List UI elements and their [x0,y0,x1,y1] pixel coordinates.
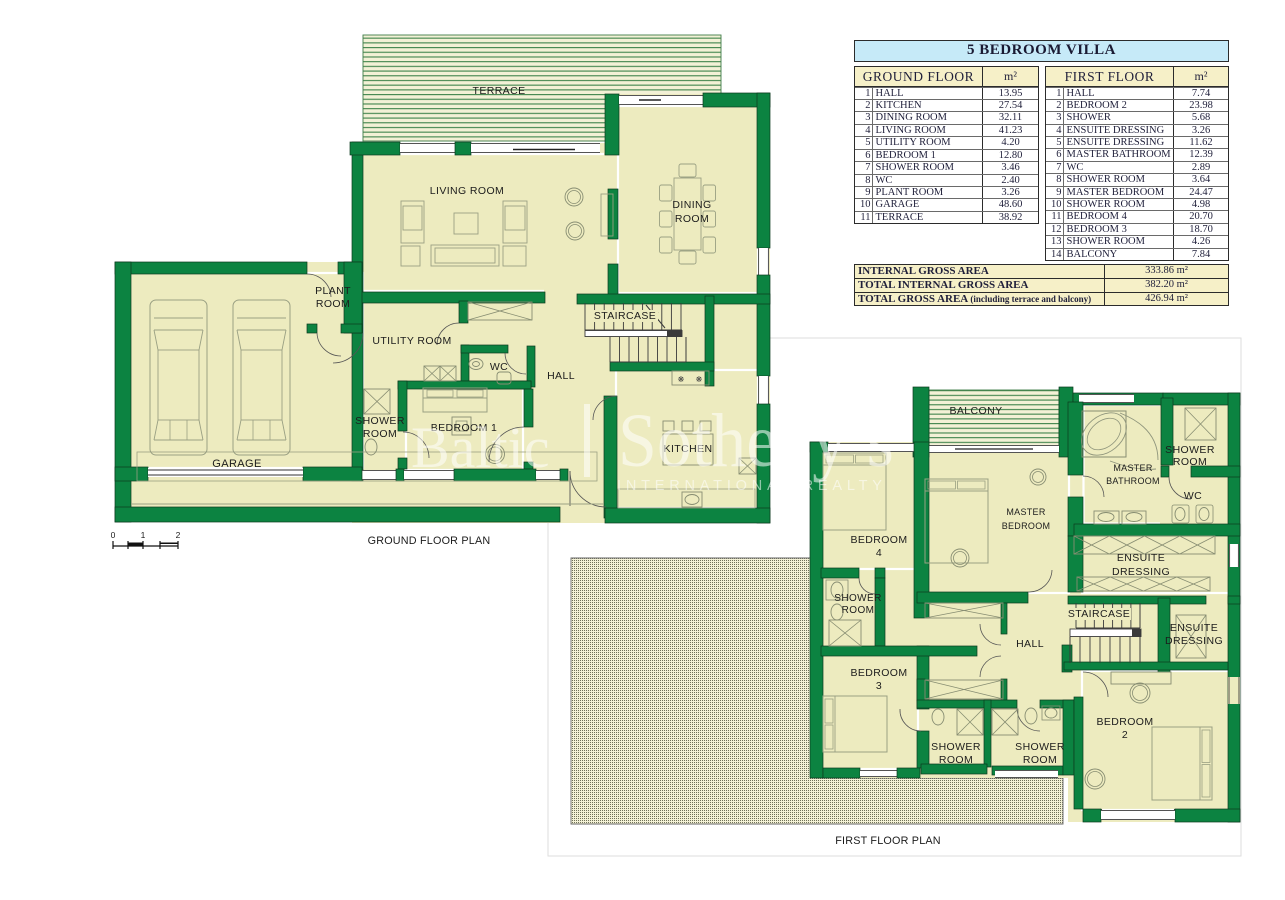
svg-text:BEDROOM: BEDROOM [850,534,907,546]
svg-text:BEDROOM: BEDROOM [1002,521,1051,531]
svg-text:2: 2 [176,530,181,540]
svg-text:MASTER: MASTER [1006,507,1046,517]
svg-text:STAIRCASE: STAIRCASE [594,310,656,322]
svg-text:SHOWER: SHOWER [931,741,981,753]
svg-text:BATHROOM: BATHROOM [1106,476,1160,486]
svg-text:GROUND FLOOR PLAN: GROUND FLOOR PLAN [368,535,491,547]
svg-text:ROOM: ROOM [675,213,709,225]
svg-text:0: 0 [111,530,116,540]
svg-text:UTILITY ROOM: UTILITY ROOM [372,335,451,347]
svg-text:WC: WC [1184,490,1202,502]
svg-text:SHOWER: SHOWER [1015,741,1065,753]
svg-text:SHOWER: SHOWER [834,593,881,604]
svg-text:1: 1 [141,530,146,540]
svg-text:BEDROOM: BEDROOM [1096,716,1153,728]
svg-text:ROOM: ROOM [316,298,350,310]
svg-text:DINING: DINING [672,199,711,211]
svg-text:HALL: HALL [547,370,575,382]
svg-text:FIRST FLOOR PLAN: FIRST FLOOR PLAN [835,835,941,847]
svg-text:SHOWER: SHOWER [355,415,405,427]
svg-text:ROOM: ROOM [1023,754,1057,766]
svg-text:4: 4 [876,547,882,559]
svg-text:GARAGE: GARAGE [212,458,261,470]
svg-text:STAIRCASE: STAIRCASE [1068,608,1130,620]
svg-text:ENSUITE: ENSUITE [1117,552,1165,564]
svg-text:ROOM: ROOM [1173,456,1207,468]
svg-text:MASTER: MASTER [1113,463,1153,473]
svg-text:SHOWER: SHOWER [1165,444,1215,456]
svg-text:❋: ❋ [696,375,703,384]
svg-text:DRESSING: DRESSING [1165,635,1223,647]
svg-text:ENSUITE: ENSUITE [1170,622,1218,634]
svg-text:LIVING ROOM: LIVING ROOM [430,185,504,197]
svg-text:❋: ❋ [678,375,685,384]
svg-text:WC: WC [490,361,508,373]
svg-text:3: 3 [876,680,882,692]
svg-text:HALL: HALL [1016,638,1044,650]
svg-text:ROOM: ROOM [842,605,875,616]
svg-text:PLANT: PLANT [315,285,351,297]
svg-text:2: 2 [1122,729,1128,741]
svg-text:BALCONY: BALCONY [950,405,1003,417]
svg-text:ROOM: ROOM [939,754,973,766]
svg-text:BEDROOM: BEDROOM [850,667,907,679]
svg-text:ROOM: ROOM [363,428,397,440]
svg-text:TERRACE: TERRACE [473,85,526,97]
svg-text:DRESSING: DRESSING [1112,566,1170,578]
